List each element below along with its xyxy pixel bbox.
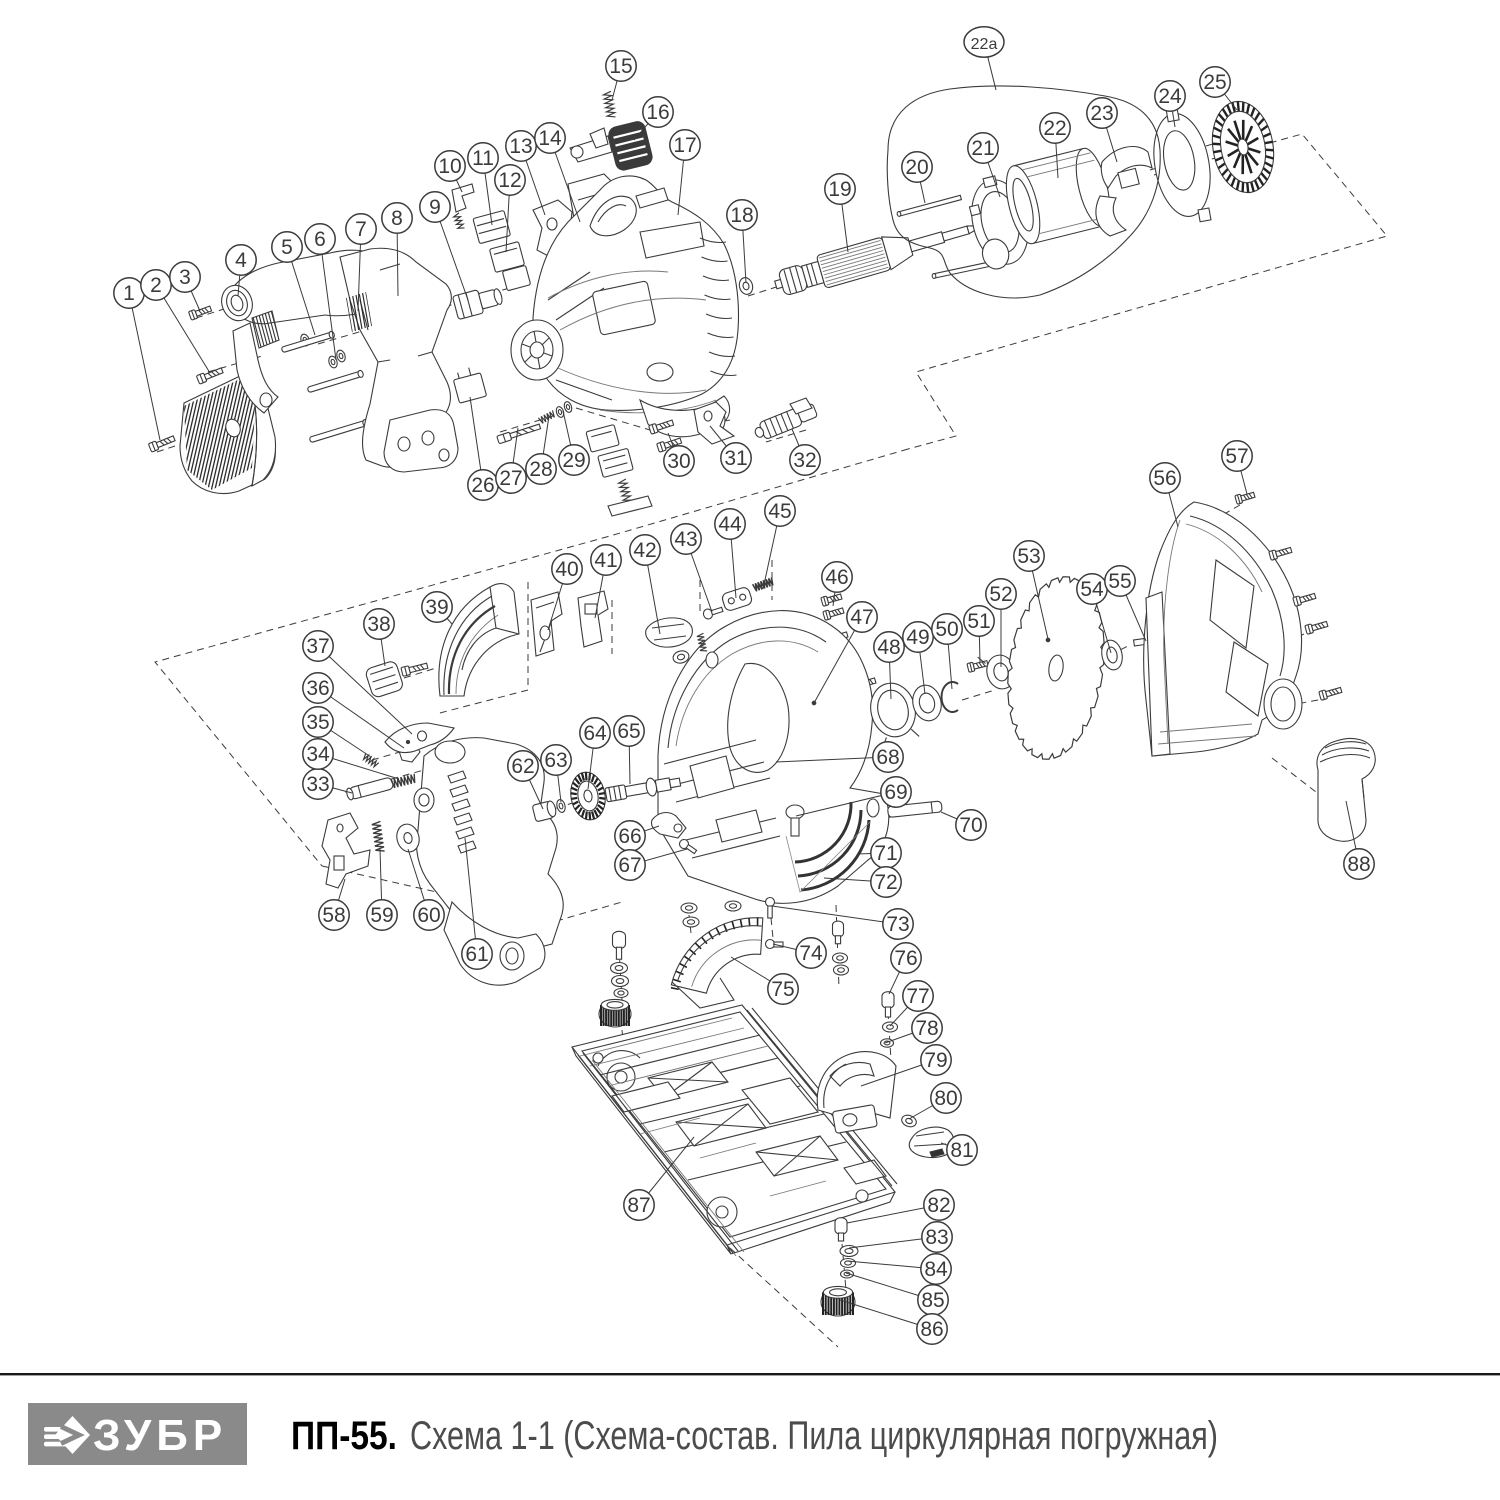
svg-text:84: 84 <box>924 1258 948 1281</box>
svg-text:81: 81 <box>950 1139 973 1162</box>
svg-text:25: 25 <box>1203 71 1226 94</box>
svg-text:36: 36 <box>306 677 329 700</box>
svg-text:88: 88 <box>1347 853 1370 876</box>
svg-text:26: 26 <box>471 474 494 497</box>
svg-text:22a: 22a <box>971 36 998 53</box>
svg-text:8: 8 <box>391 207 403 230</box>
svg-text:67: 67 <box>618 854 641 877</box>
svg-text:42: 42 <box>633 539 656 562</box>
svg-text:46: 46 <box>825 566 848 589</box>
svg-text:21: 21 <box>971 137 994 160</box>
svg-text:87: 87 <box>627 1194 650 1217</box>
svg-text:1: 1 <box>123 282 135 305</box>
svg-text:9: 9 <box>429 196 441 219</box>
svg-text:43: 43 <box>674 528 697 551</box>
svg-text:45: 45 <box>768 500 791 523</box>
svg-text:4: 4 <box>235 249 247 272</box>
svg-text:17: 17 <box>673 134 696 157</box>
svg-text:22: 22 <box>1043 117 1066 140</box>
svg-text:31: 31 <box>724 447 747 470</box>
svg-text:6: 6 <box>314 228 326 251</box>
svg-text:34: 34 <box>306 743 330 766</box>
svg-text:78: 78 <box>915 1017 938 1040</box>
svg-text:2: 2 <box>150 274 162 297</box>
svg-text:23: 23 <box>1090 102 1113 125</box>
svg-text:52: 52 <box>989 583 1012 606</box>
svg-text:60: 60 <box>417 904 440 927</box>
svg-text:5: 5 <box>281 236 293 259</box>
svg-text:54: 54 <box>1080 578 1104 601</box>
svg-text:32: 32 <box>793 449 816 472</box>
svg-text:70: 70 <box>959 814 982 837</box>
svg-text:13: 13 <box>509 135 532 158</box>
svg-text:10: 10 <box>438 155 461 178</box>
svg-text:77: 77 <box>906 985 929 1008</box>
svg-text:20: 20 <box>905 156 928 179</box>
svg-text:62: 62 <box>511 755 534 778</box>
svg-text:72: 72 <box>874 871 897 894</box>
svg-text:41: 41 <box>594 549 617 572</box>
svg-text:85: 85 <box>921 1289 944 1312</box>
svg-text:64: 64 <box>583 722 607 745</box>
svg-text:18: 18 <box>730 204 753 227</box>
svg-text:74: 74 <box>799 942 823 965</box>
svg-text:53: 53 <box>1017 545 1040 568</box>
svg-text:69: 69 <box>884 781 907 804</box>
svg-text:38: 38 <box>367 613 390 636</box>
svg-text:48: 48 <box>877 636 900 659</box>
svg-text:86: 86 <box>920 1318 943 1341</box>
svg-text:76: 76 <box>894 947 917 970</box>
svg-text:56: 56 <box>1153 467 1176 490</box>
svg-text:19: 19 <box>828 178 851 201</box>
svg-text:29: 29 <box>562 449 585 472</box>
svg-text:ПП-55.: ПП-55. <box>291 1414 397 1458</box>
svg-text:50: 50 <box>935 618 958 641</box>
svg-text:61: 61 <box>465 943 488 966</box>
svg-text:58: 58 <box>322 904 345 927</box>
svg-text:33: 33 <box>306 773 329 796</box>
svg-text:12: 12 <box>498 169 521 192</box>
svg-text:71: 71 <box>874 842 897 865</box>
svg-text:68: 68 <box>876 746 899 769</box>
svg-text:44: 44 <box>718 513 742 536</box>
svg-text:35: 35 <box>306 711 329 734</box>
svg-text:11: 11 <box>472 147 494 170</box>
svg-text:51: 51 <box>967 610 990 633</box>
svg-text:14: 14 <box>538 127 562 150</box>
svg-text:65: 65 <box>617 720 640 743</box>
svg-text:39: 39 <box>425 596 448 619</box>
svg-text:30: 30 <box>667 450 690 473</box>
svg-text:40: 40 <box>555 558 578 581</box>
svg-text:82: 82 <box>927 1194 950 1217</box>
svg-text:28: 28 <box>529 458 552 481</box>
svg-text:47: 47 <box>850 606 873 629</box>
svg-text:66: 66 <box>618 825 641 848</box>
svg-text:16: 16 <box>646 101 669 124</box>
svg-text:ЗУБР: ЗУБР <box>93 1411 227 1460</box>
svg-text:83: 83 <box>925 1226 948 1249</box>
svg-text:55: 55 <box>1108 570 1131 593</box>
svg-text:79: 79 <box>924 1049 947 1072</box>
svg-text:27: 27 <box>499 467 522 490</box>
svg-text:80: 80 <box>934 1087 957 1110</box>
svg-text:63: 63 <box>544 749 567 772</box>
svg-text:Схема 1-1 (Схема-состав. Пила: Схема 1-1 (Схема-состав. Пила циркулярна… <box>410 1414 1218 1458</box>
svg-text:75: 75 <box>771 978 794 1001</box>
svg-text:73: 73 <box>886 913 909 936</box>
svg-text:37: 37 <box>306 635 329 658</box>
svg-text:7: 7 <box>355 218 367 241</box>
svg-text:3: 3 <box>179 266 191 289</box>
svg-text:59: 59 <box>370 904 393 927</box>
svg-text:24: 24 <box>1158 85 1182 108</box>
svg-text:15: 15 <box>609 55 632 78</box>
svg-text:57: 57 <box>1225 445 1248 468</box>
svg-text:49: 49 <box>906 626 929 649</box>
